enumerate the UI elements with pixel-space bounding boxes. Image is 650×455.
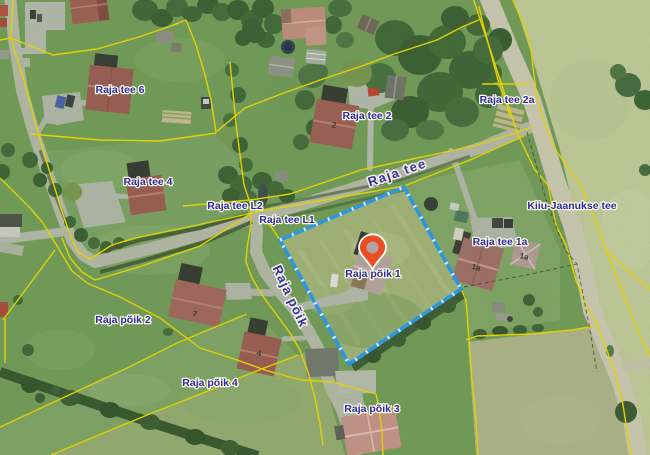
svg-text:Kiiu-Jaanukse tee: Kiiu-Jaanukse tee <box>527 200 616 212</box>
svg-text:Raja tee 2: Raja tee 2 <box>342 110 391 122</box>
svg-text:Raja tee 4: Raja tee 4 <box>123 176 172 188</box>
svg-text:Raja põik 2: Raja põik 2 <box>95 314 151 326</box>
svg-text:Raja tee 1a: Raja tee 1a <box>473 236 528 248</box>
svg-text:Raja tee 6: Raja tee 6 <box>95 84 144 96</box>
svg-text:Raja tee L2: Raja tee L2 <box>207 200 263 212</box>
svg-text:Raja põik 4: Raja põik 4 <box>182 377 238 389</box>
svg-text:Raja tee 2a: Raja tee 2a <box>480 94 535 106</box>
svg-text:Raja tee L1: Raja tee L1 <box>259 214 315 226</box>
svg-text:Raja põik 3: Raja põik 3 <box>344 403 400 415</box>
